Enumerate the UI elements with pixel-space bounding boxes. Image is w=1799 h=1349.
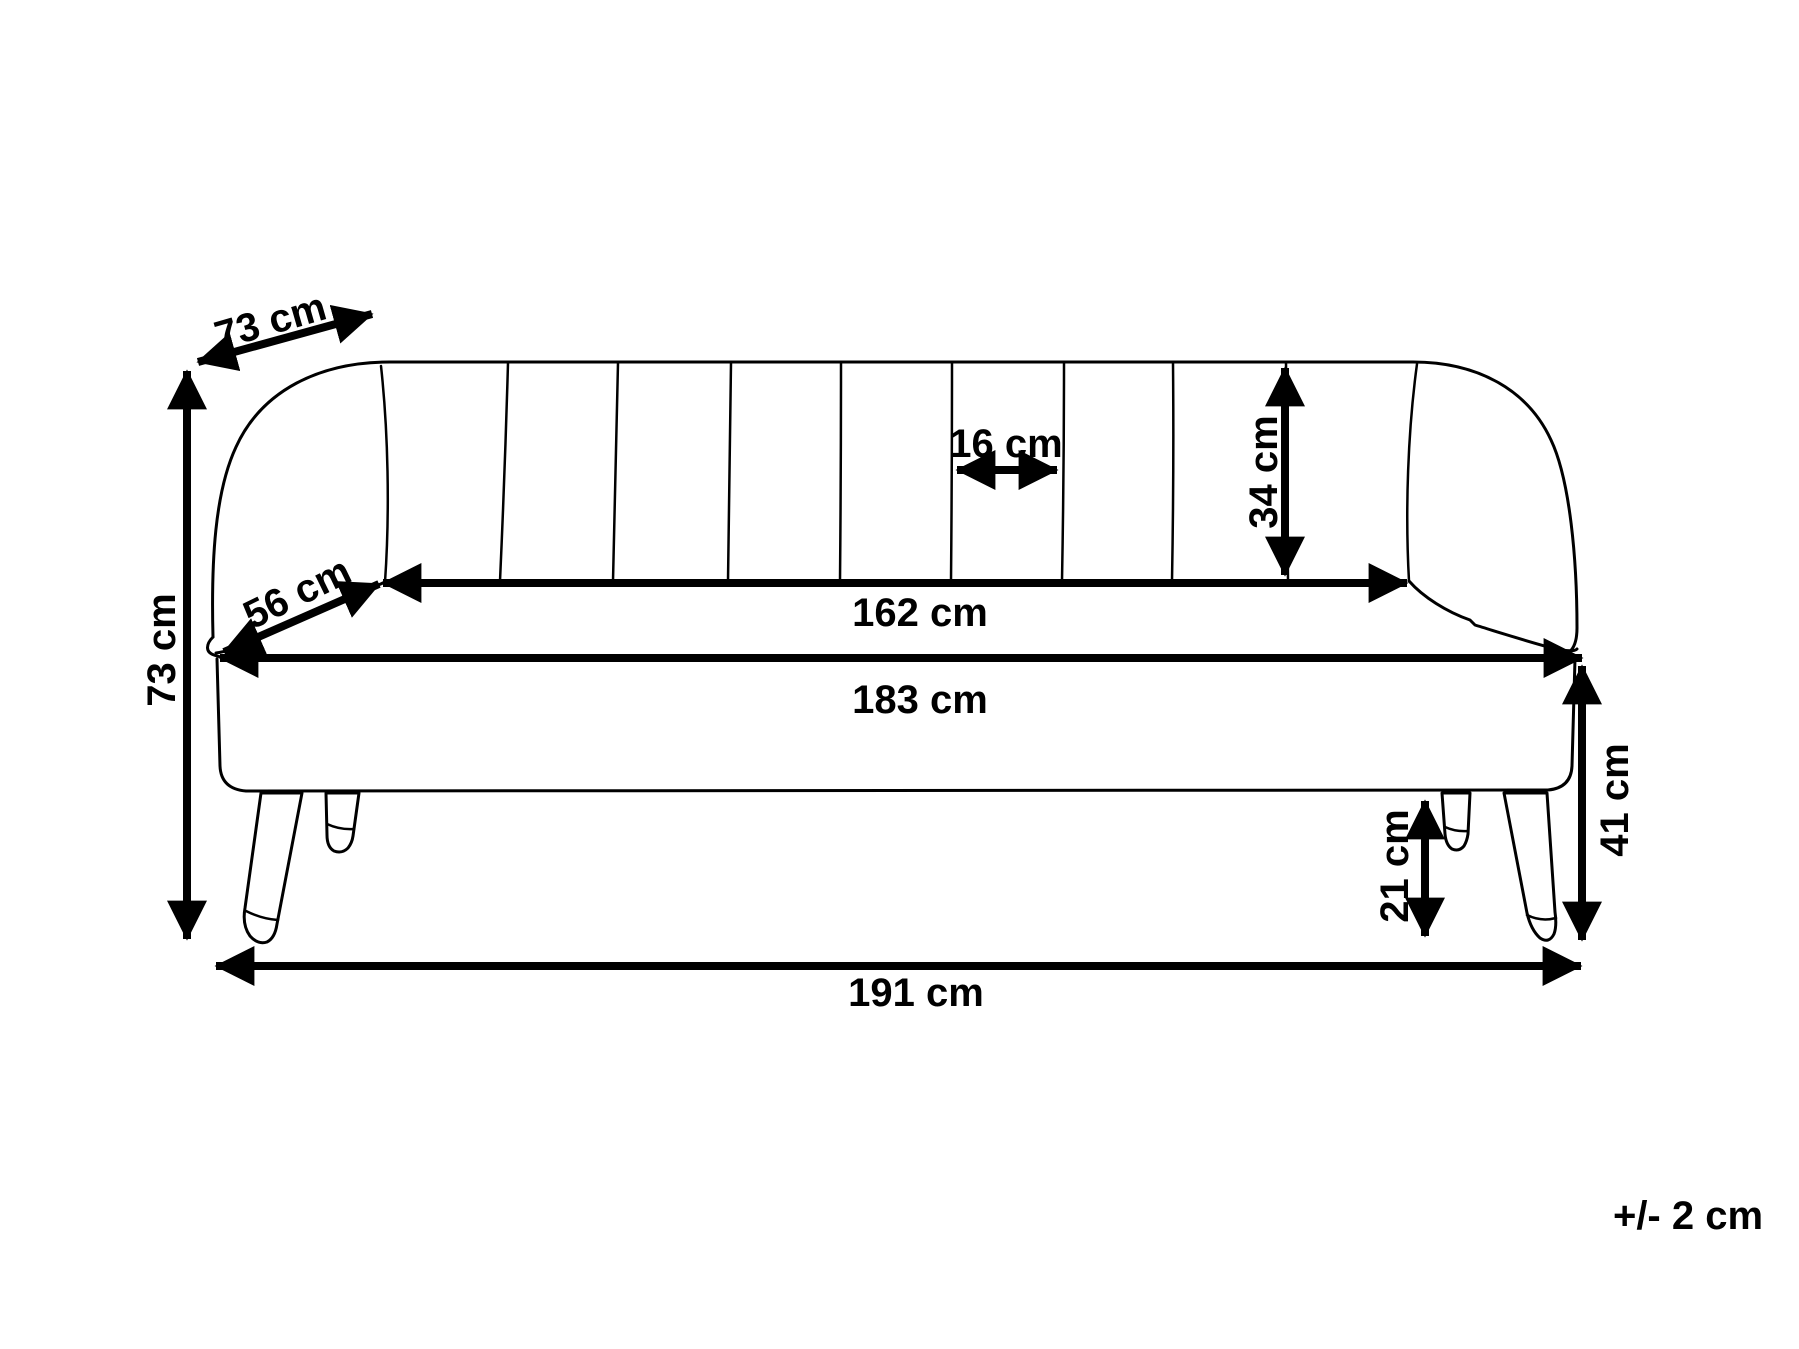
dim-label-overall-width: 191 cm — [848, 971, 984, 1015]
dim-label-body-width: 183 cm — [852, 678, 988, 722]
backrest-channel-seam — [951, 363, 952, 581]
dim-label-overall-depth: 73 cm — [210, 285, 331, 359]
dim-label-channel-width: 16 cm — [949, 422, 1062, 466]
backrest-channel-seam — [728, 363, 731, 581]
dim-label-leg-height: 21 cm — [1373, 809, 1417, 922]
backrest-channel-seam — [840, 363, 841, 581]
sofa-dimension-diagram: 73 cm 73 cm 56 cm 16 cm 34 cm 162 cm 183… — [0, 0, 1799, 1349]
dim-label-seat-width: 162 cm — [852, 591, 988, 635]
backrest-channel-seam — [500, 363, 508, 581]
rear-right-leg — [1442, 793, 1470, 850]
sofa-outline-group — [208, 362, 1578, 943]
dim-label-backrest-height: 34 cm — [1242, 415, 1286, 528]
backrest-channel-seam — [613, 363, 618, 581]
backrest-channel-seam — [1062, 363, 1064, 581]
dim-label-seat-depth: 56 cm — [237, 549, 358, 638]
dim-label-base-height: 41 cm — [1593, 743, 1637, 856]
tolerance-note: +/- 2 cm — [1613, 1194, 1763, 1238]
rear-left-leg — [326, 793, 359, 852]
sofa-right-seat-contour — [1409, 581, 1577, 651]
dimension-labels: 73 cm 73 cm 56 cm 16 cm 34 cm 162 cm 183… — [140, 285, 1763, 1238]
sofa-left-arm-seam — [381, 366, 388, 582]
dim-label-overall-height: 73 cm — [140, 593, 184, 706]
sofa-right-arm-seam — [1407, 364, 1417, 581]
backrest-channel-seam — [1172, 363, 1173, 581]
